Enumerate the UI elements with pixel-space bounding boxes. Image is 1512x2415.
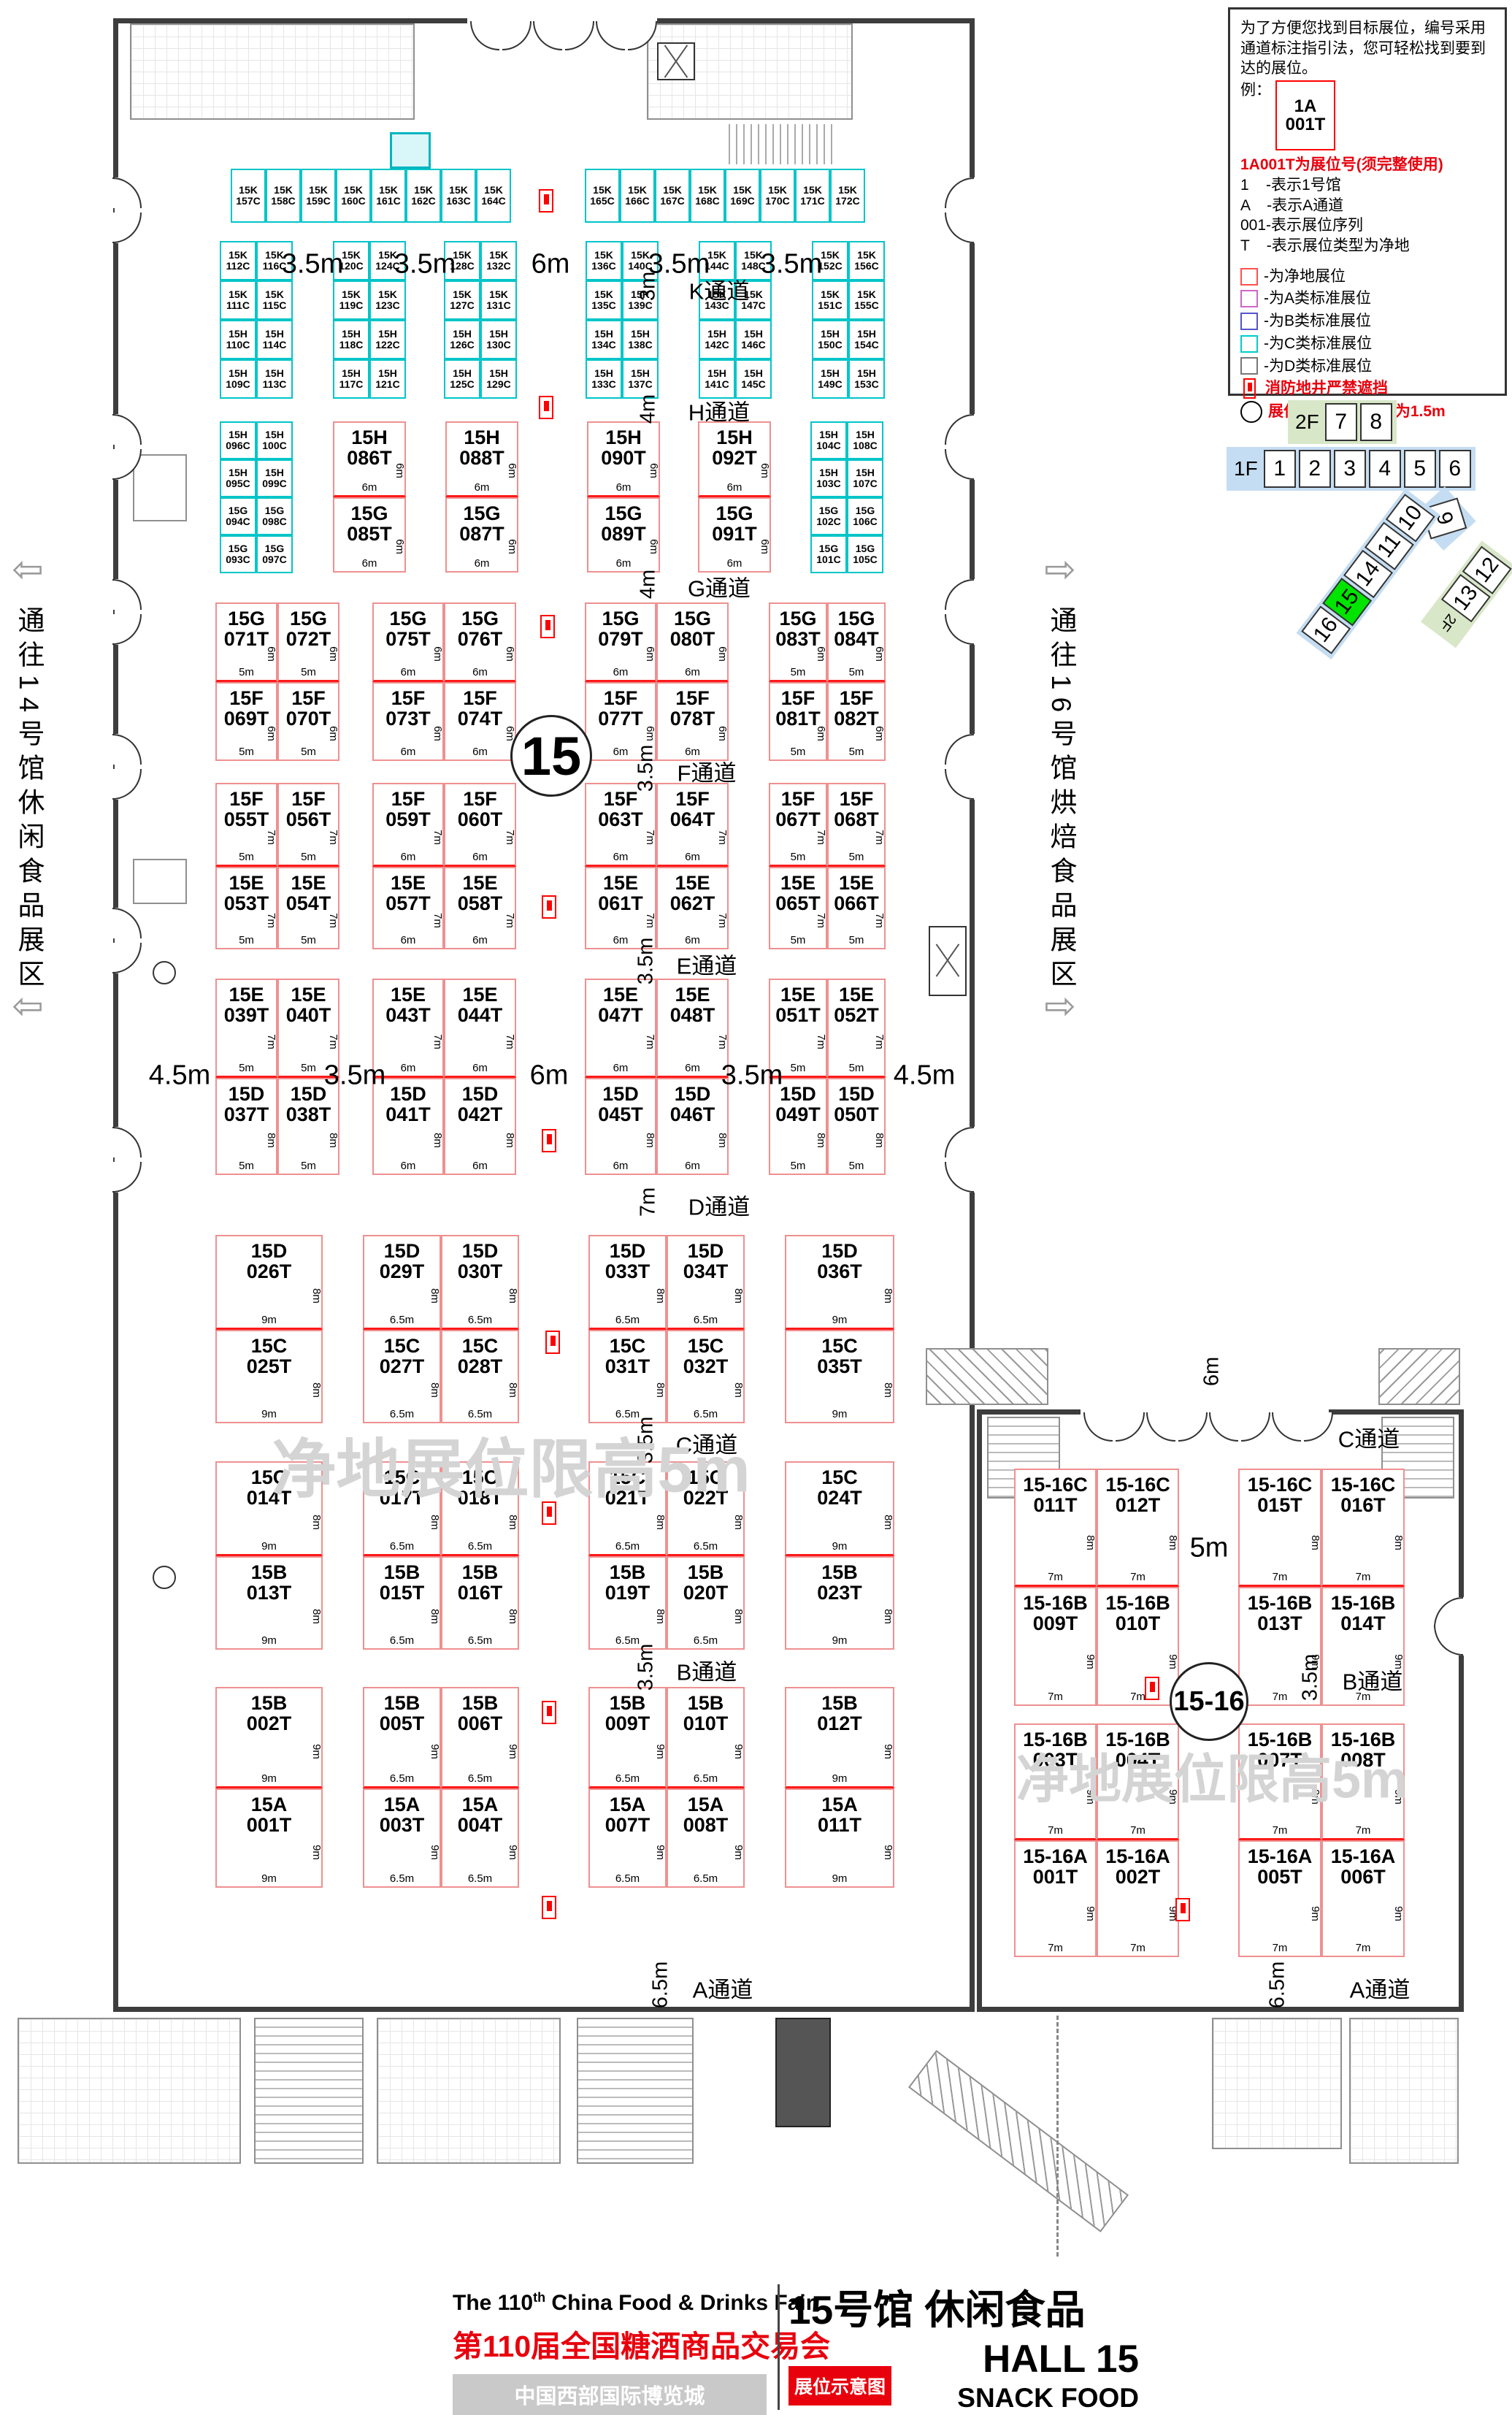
side-door — [942, 579, 977, 645]
fire-hydrant-icon — [542, 1501, 556, 1525]
minimap-hall-cell: 6 — [1439, 450, 1471, 488]
booth-15K132C: 15K132C — [480, 241, 517, 280]
minimap-2f-label: 2F — [1295, 410, 1319, 434]
booth-15H126C: 15H126C — [444, 320, 480, 359]
annex-door — [1272, 1409, 1333, 1444]
side-door — [110, 177, 145, 243]
legend-swatch-row: -为净地展位 — [1240, 267, 1497, 287]
booth-15A011T: 15A011T9m9m — [785, 1788, 894, 1888]
booth-15-16C012T: 15-16C012T8m7m — [1097, 1469, 1179, 1587]
legend-fire-note: 消防地井严禁遮挡 — [1265, 378, 1388, 399]
column-circle — [153, 961, 176, 984]
booth-15H142C: 15H142C — [699, 320, 735, 359]
booth-type-swatch-icon — [1240, 268, 1258, 286]
booth-15G085T: 15G085T6m6m — [333, 497, 406, 573]
booth-type-swatch-icon — [1240, 335, 1258, 353]
legend-swatch-label: -为D类标准展位 — [1264, 356, 1372, 377]
booth-15H122C: 15H122C — [369, 320, 406, 359]
booth-15F064T: 15F064T7m6m — [656, 783, 729, 867]
elevator-top — [657, 42, 695, 80]
booth-15D050T: 15D050T8m5m — [827, 1078, 886, 1175]
legend-intro: 为了方便您找到目标展位，编号采用通道标注指引法，您可轻松找到要到达的展位。 — [1240, 18, 1497, 79]
booth-15G087T: 15G087T6m6m — [445, 497, 518, 573]
legend-box: 为了方便您找到目标展位，编号采用通道标注指引法，您可轻松找到要到达的展位。 例：… — [1228, 7, 1507, 396]
booth-15E062T: 15E062T7m6m — [656, 867, 729, 949]
booth-15H146C: 15H146C — [735, 320, 772, 359]
booth-15K151C: 15K151C — [812, 280, 848, 320]
fire-hydrant-icon — [1145, 1677, 1159, 1700]
minimap-hall-cell: 5 — [1404, 450, 1436, 488]
booth-15A008T: 15A008T9m6.5m — [667, 1788, 745, 1888]
arrow-right-icon: ⇨ — [1044, 984, 1076, 1028]
column-circle — [153, 1566, 176, 1589]
wayfinding-left: 通往14号馆休闲食品展区 — [9, 606, 48, 994]
booth-15F078T: 15F078T6m6m — [656, 682, 729, 761]
hall-number-circle: 15 — [510, 715, 592, 797]
booth-15E058T: 15E058T7m6m — [444, 867, 516, 949]
booth-15E052T: 15E052T7m5m — [827, 979, 886, 1078]
booth-15K156C: 15K156C — [848, 241, 885, 280]
booth-15F082T: 15F082T6m5m — [827, 682, 886, 761]
legend-swatch-row: -为B类标准展位 — [1240, 311, 1497, 332]
booth-15K131C: 15K131C — [480, 280, 517, 320]
service-room-cyan — [390, 132, 431, 169]
booth-15E054T: 15E054T7m5m — [277, 867, 339, 949]
side-door — [110, 414, 145, 480]
canopy-hatch-left — [926, 1348, 1048, 1405]
booth-type-swatch-icon — [1240, 290, 1258, 307]
booth-15K136C: 15K136C — [586, 241, 622, 280]
booth-15H141C: 15H141C — [699, 359, 735, 399]
legend-example-label: 例： — [1240, 80, 1271, 101]
booth-15K171C: 15K171C — [795, 169, 830, 223]
booth-15F059T: 15F059T7m6m — [372, 783, 444, 867]
booth-15H104C: 15H104C — [810, 421, 847, 459]
booth-15E048T: 15E048T7m6m — [656, 979, 729, 1078]
legend-item: T -表示展位类型为净地 — [1240, 236, 1497, 256]
booth-15D041T: 15D041T8m6m — [372, 1078, 444, 1175]
booth-15-16A001T: 15-16A001T9m7m — [1014, 1840, 1097, 1957]
dim-label: 4m — [637, 394, 661, 424]
aisle-label-B通道: B通道 — [677, 1654, 737, 1687]
minimap-hall-cell: 8 — [1360, 403, 1392, 441]
booth-15F081T: 15F081T6m5m — [769, 682, 827, 761]
booth-15K119C: 15K119C — [333, 280, 369, 320]
booth-15F063T: 15F063T7m6m — [585, 783, 656, 867]
booth-type-swatch-icon — [1240, 313, 1258, 330]
side-door — [110, 579, 145, 645]
title-block: The 110th China Food & Drinks Fair 第110届… — [409, 2264, 1139, 2415]
legend-swatch-label: -为B类标准展位 — [1264, 311, 1371, 332]
booth-15K160C: 15K160C — [336, 169, 371, 223]
restroom-block-bottom-2 — [377, 2018, 561, 2164]
dim-label: 6.5m — [649, 1962, 673, 2008]
side-door — [942, 734, 977, 800]
booth-15K163C: 15K163C — [441, 169, 476, 223]
aisle-label-G通道: G通道 — [688, 570, 751, 603]
fire-hydrant-icon — [542, 1896, 556, 1919]
booth-15A001T: 15A001T9m9m — [215, 1788, 323, 1888]
booth-15K166C: 15K166C — [620, 169, 655, 223]
booth-15G105C: 15G105C — [847, 535, 883, 573]
booth-15H100C: 15H100C — [256, 421, 293, 459]
minimap-hall-cell: 1 — [1264, 450, 1296, 488]
booth-15G071T: 15G071T6m5m — [215, 602, 277, 682]
floorplan-canvas: ⇦ 通往14号馆休闲食品展区 ⇦ ⇨ 通往16号馆烘焙食品展区 ⇨ 为了方便您找… — [0, 0, 1512, 2415]
side-door — [110, 1127, 145, 1193]
entrance-door — [596, 18, 657, 55]
side-door — [942, 1127, 977, 1193]
booth-15K172C: 15K172C — [830, 169, 865, 223]
restroom-block-topleft — [130, 23, 415, 120]
booth-15H109C: 15H109C — [220, 359, 256, 399]
minimap-1f-label: 1F — [1234, 457, 1258, 481]
booth-15H134C: 15H134C — [586, 320, 622, 359]
booth-15B009T: 15B009T9m6.5m — [588, 1687, 667, 1788]
booth-15-16C016T: 15-16C016T8m7m — [1321, 1469, 1405, 1587]
booth-15H113C: 15H113C — [256, 359, 293, 399]
booth-15H108C: 15H108C — [847, 421, 883, 459]
booth-15H086T: 15H086T6m6m — [333, 421, 406, 497]
booth-15G075T: 15G075T6m6m — [372, 602, 444, 682]
booth-15K123C: 15K123C — [369, 280, 406, 320]
booth-15K127C: 15K127C — [444, 280, 480, 320]
fair-title-cn: 第110届全国糖酒商品交易会 — [453, 2322, 767, 2365]
legend-swatch-row: -为A类标准展位 — [1240, 288, 1497, 309]
legend-swatch-label: -为A类标准展位 — [1264, 288, 1371, 309]
booth-15C028T: 15C028T8m6.5m — [441, 1330, 519, 1423]
booth-15K167C: 15K167C — [655, 169, 690, 223]
booth-15-16B010T: 15-16B010T9m7m — [1097, 1587, 1179, 1706]
booth-15E044T: 15E044T7m6m — [444, 979, 516, 1078]
facility-annex-bottom-2 — [1349, 2018, 1459, 2164]
booth-15-16A006T: 15-16A006T9m7m — [1321, 1840, 1405, 1957]
booth-15K170C: 15K170C — [760, 169, 795, 223]
legend-item: 1 -表示1号馆 — [1240, 175, 1497, 196]
minimap-hall-cell: 2 — [1299, 450, 1331, 488]
booth-15C025T: 15C025T8m9m — [215, 1330, 323, 1423]
booth-15G102C: 15G102C — [810, 497, 847, 535]
booth-15F060T: 15F060T7m6m — [444, 783, 516, 867]
fair-title-en: The 110th China Food & Drinks Fair — [453, 2290, 767, 2316]
booth-15-16C011T: 15-16C011T8m7m — [1014, 1469, 1097, 1587]
booth-15B016T: 15B016T8m6.5m — [441, 1556, 519, 1650]
side-door — [110, 734, 145, 800]
booth-15B010T: 15B010T9m6.5m — [667, 1687, 745, 1788]
aisle-label-H通道: H通道 — [688, 394, 750, 427]
booth-15H121C: 15H121C — [369, 359, 406, 399]
restroom-block-bottomleft — [18, 2018, 241, 2164]
booth-15H096C: 15H096C — [220, 421, 256, 459]
booth-15B019T: 15B019T8m6.5m — [588, 1556, 667, 1650]
booth-15B020T: 15B020T8m6.5m — [667, 1556, 745, 1650]
shaft-bottom — [775, 2018, 831, 2127]
minimap-hall-cell: 3 — [1334, 450, 1366, 488]
booth-15G084T: 15G084T6m5m — [827, 602, 886, 682]
legend-swatch-label: -为净地展位 — [1264, 267, 1346, 287]
booth-15D034T: 15D034T8m6.5m — [667, 1235, 745, 1330]
booth-15H125C: 15H125C — [444, 359, 480, 399]
booth-15B012T: 15B012T9m9m — [785, 1687, 894, 1788]
booth-15G079T: 15G079T6m6m — [585, 602, 656, 682]
booth-15G097C: 15G097C — [256, 535, 293, 573]
booth-15F067T: 15F067T7m5m — [769, 783, 827, 867]
dim-label: 4.5m — [149, 1060, 210, 1092]
booth-15E066T: 15E066T7m5m — [827, 867, 886, 949]
booth-15H095C: 15H095C — [220, 459, 256, 497]
fire-hydrant-icon — [542, 1129, 556, 1152]
booth-15F074T: 15F074T6m6m — [444, 682, 516, 761]
booth-15C024T: 15C024T8m9m — [785, 1461, 894, 1556]
booth-15H118C: 15H118C — [333, 320, 369, 359]
booth-15H137C: 15H137C — [622, 359, 659, 399]
booth-15G106C: 15G106C — [847, 497, 883, 535]
legend-swatch-row: -为C类标准展位 — [1240, 334, 1497, 354]
dim-label: 3.5m — [721, 1060, 783, 1092]
booth-15H114C: 15H114C — [256, 320, 293, 359]
fire-hydrant-icon — [1175, 1898, 1190, 1921]
booth-15H133C: 15H133C — [586, 359, 622, 399]
booth-15-16B009T: 15-16B009T9m7m — [1014, 1587, 1097, 1706]
booth-15H150C: 15H150C — [812, 320, 848, 359]
booth-15G091T: 15G091T6m6m — [698, 497, 771, 573]
booth-15H154C: 15H154C — [848, 320, 885, 359]
booth-15H103C: 15H103C — [810, 459, 847, 497]
minimap-2f-side-label: 2F — [1436, 611, 1459, 634]
stairs-bottom-1 — [254, 2018, 364, 2164]
booth-15A004T: 15A004T9m6.5m — [441, 1788, 519, 1888]
booth-15A007T: 15A007T9m6.5m — [588, 1788, 667, 1888]
fire-hydrant-icon — [539, 396, 553, 419]
aisle-label-E通道: E通道 — [677, 948, 737, 981]
dim-label: 3.5m — [1299, 1654, 1323, 1701]
aisle-label-F通道: F通道 — [678, 755, 737, 788]
dim-label: 5m — [1190, 1533, 1229, 1564]
hall-number-circle: 15-16 — [1170, 1662, 1248, 1741]
room-left-2 — [133, 859, 187, 904]
dim-label: 3.5m — [394, 249, 456, 280]
aisle-label-C通道: C通道 — [1338, 1421, 1400, 1454]
booth-15D033T: 15D033T8m6.5m — [588, 1235, 667, 1330]
aisle-label-D通道: D通道 — [688, 1189, 750, 1222]
stairs-bottom-2 — [577, 2018, 694, 2164]
booth-15A003T: 15A003T9m6.5m — [363, 1788, 441, 1888]
booth-15G076T: 15G076T6m6m — [444, 602, 516, 682]
booth-15B006T: 15B006T9m6.5m — [441, 1687, 519, 1788]
booth-15C035T: 15C035T8m9m — [785, 1330, 894, 1423]
booth-15D026T: 15D026T8m9m — [215, 1235, 323, 1330]
annex-door — [1146, 1409, 1208, 1444]
annex-door — [1209, 1409, 1270, 1444]
booth-15C027T: 15C027T8m6.5m — [363, 1330, 441, 1423]
escalator-ramp — [908, 2050, 1129, 2232]
dim-label: 3.5m — [761, 249, 822, 280]
booth-15D038T: 15D038T8m5m — [277, 1078, 339, 1175]
booth-15E057T: 15E057T7m6m — [372, 867, 444, 949]
minimap-hall-cell: 7 — [1325, 403, 1357, 441]
title-divider — [778, 2284, 780, 2410]
booth-15D037T: 15D037T8m5m — [215, 1078, 277, 1175]
entrance-door — [533, 18, 594, 55]
booth-15-16A005T: 15-16A005T9m7m — [1238, 1840, 1321, 1957]
booth-15H107C: 15H107C — [847, 459, 883, 497]
arrow-left-icon: ⇦ — [12, 548, 44, 592]
booth-15K115C: 15K115C — [256, 280, 293, 320]
booth-15D029T: 15D029T8m6.5m — [363, 1235, 441, 1330]
booth-15E065T: 15E065T7m5m — [769, 867, 827, 949]
booth-15K161C: 15K161C — [371, 169, 406, 223]
booth-15H138C: 15H138C — [622, 320, 659, 359]
minimap-hall-cell: 4 — [1369, 450, 1401, 488]
booth-15K135C: 15K135C — [586, 280, 622, 320]
legend-swatch-label: -为C类标准展位 — [1264, 334, 1372, 354]
booth-15F069T: 15F069T6m5m — [215, 682, 277, 761]
aisle-label-B通道: B通道 — [1343, 1664, 1403, 1696]
booth-15K112C: 15K112C — [220, 241, 256, 280]
dim-label: 4.5m — [894, 1060, 955, 1092]
booth-15F070T: 15F070T6m5m — [277, 682, 339, 761]
dim-label: 6m — [531, 249, 570, 280]
booth-15-16C015T: 15-16C015T8m7m — [1238, 1469, 1321, 1587]
booth-15B005T: 15B005T9m6.5m — [363, 1687, 441, 1788]
booth-15G080T: 15G080T6m6m — [656, 602, 729, 682]
section-divider-dashed — [1056, 2016, 1059, 2257]
booth-15C032T: 15C032T8m6.5m — [667, 1330, 745, 1423]
booth-15K168C: 15K168C — [690, 169, 725, 223]
minimap-2f-strip: 2F 78 — [1288, 400, 1397, 444]
fire-hydrant-icon — [540, 615, 555, 638]
booth-15K162C: 15K162C — [406, 169, 441, 223]
booth-15G083T: 15G083T6m5m — [769, 602, 827, 682]
booth-15G098C: 15G098C — [256, 497, 293, 535]
booth-15H129C: 15H129C — [480, 359, 517, 399]
venue-name: 中国西部国际博览城 — [453, 2374, 767, 2415]
height-limit-watermark: 净地展位限高5m — [272, 1418, 750, 1511]
booth-15K155C: 15K155C — [848, 280, 885, 320]
booth-15F068T: 15F068T7m5m — [827, 783, 886, 867]
booth-15H117C: 15H117C — [333, 359, 369, 399]
booth-15H092T: 15H092T6m6m — [698, 421, 771, 497]
booth-15B015T: 15B015T8m6.5m — [363, 1556, 441, 1650]
minimap-hall-chain: 1011141516 — [1296, 489, 1440, 659]
entrance-door — [470, 18, 531, 55]
booth-15K164C: 15K164C — [476, 169, 511, 223]
booth-15D030T: 15D030T8m6.5m — [441, 1235, 519, 1330]
booth-15K111C: 15K111C — [220, 280, 256, 320]
minimap-1f-strip: 1F 123456 — [1227, 447, 1475, 491]
booth-type-swatch-icon — [1240, 357, 1258, 375]
booth-15H090T: 15H090T6m6m — [587, 421, 660, 497]
side-door — [110, 908, 145, 973]
booth-15H153C: 15H153C — [848, 359, 885, 399]
booth-15C031T: 15C031T8m6.5m — [588, 1330, 667, 1423]
dim-label: 3.5m — [634, 1644, 659, 1691]
side-door — [942, 177, 977, 243]
dim-label: 6m — [1200, 1357, 1224, 1386]
booth-15E039T: 15E039T7m5m — [215, 979, 277, 1078]
fire-hydrant-icon — [542, 1701, 556, 1724]
vent-grille-top — [723, 124, 832, 164]
booth-15-16A002T: 15-16A002T9m7m — [1097, 1840, 1179, 1957]
dim-label: 7m — [637, 1187, 661, 1217]
wayfinding-right: 通往16号馆烘焙食品展区 — [1041, 606, 1081, 994]
fire-hydrant-icon — [545, 1331, 560, 1354]
booth-15H130C: 15H130C — [480, 320, 517, 359]
canopy-hatch-right — [1378, 1348, 1460, 1405]
booth-15F055T: 15F055T7m5m — [215, 783, 277, 867]
map-type-badge: 展位示意图 — [788, 2366, 891, 2406]
dim-label: 3.5m — [634, 938, 659, 984]
dim-label: 4m — [637, 570, 661, 599]
legend-item: A -表示A通道 — [1240, 196, 1497, 216]
booth-15B002T: 15B002T9m9m — [215, 1687, 323, 1788]
booth-15B013T: 15B013T8m9m — [215, 1556, 323, 1650]
dim-label: 3.5m — [324, 1060, 385, 1092]
booth-15D045T: 15D045T8m6m — [585, 1078, 656, 1175]
arrow-left-icon: ⇦ — [12, 984, 44, 1028]
height-limit-watermark: 净地展位限高5m — [1016, 1737, 1408, 1813]
aisle-label-A通道: A通道 — [1350, 1972, 1411, 2005]
elevator-mid-right — [929, 926, 967, 996]
dim-label: 3.5m — [282, 249, 343, 280]
booth-15G094C: 15G094C — [220, 497, 256, 535]
booth-15H149C: 15H149C — [812, 359, 848, 399]
dim-label: 3.5m — [648, 249, 710, 280]
booth-15G089T: 15G089T6m6m — [587, 497, 660, 573]
venue-minimap: 2F 78 1F 123456 9 1011141516 12132F — [1227, 400, 1511, 714]
booth-15F073T: 15F073T6m6m — [372, 682, 444, 761]
booth-15B023T: 15B023T8m9m — [785, 1556, 894, 1650]
booth-15E047T: 15E047T7m6m — [585, 979, 656, 1078]
booth-15G093C: 15G093C — [220, 535, 256, 573]
booth-15D042T: 15D042T8m6m — [444, 1078, 516, 1175]
booth-15K157C: 15K157C — [231, 169, 266, 223]
side-door — [1431, 1597, 1466, 1656]
fire-hydrant-icon — [539, 189, 553, 213]
booth-15K158C: 15K158C — [266, 169, 301, 223]
legend-note: 1A001T为展位号(须完整使用) — [1240, 155, 1497, 175]
arrow-right-icon: ⇨ — [1044, 548, 1076, 592]
booth-15K159C: 15K159C — [301, 169, 336, 223]
dim-label: 3.5m — [634, 745, 659, 792]
dim-label: 6.5m — [1266, 1962, 1290, 2008]
minimap-hall12-13: 12132F — [1421, 540, 1512, 648]
legend-example-booth: 1A001T — [1275, 80, 1335, 150]
booth-15E053T: 15E053T7m5m — [215, 867, 277, 949]
booth-15K169C: 15K169C — [725, 169, 760, 223]
booth-15G072T: 15G072T6m5m — [277, 602, 339, 682]
legend-item: 001-表示展位序列 — [1240, 215, 1497, 236]
facility-annex-bottom-1 — [1212, 2018, 1342, 2149]
booth-15H145C: 15H145C — [735, 359, 772, 399]
fire-hydrant-icon — [542, 895, 556, 919]
fire-hydrant-icon — [1243, 378, 1256, 399]
booth-15H099C: 15H099C — [256, 459, 293, 497]
booth-15K165C: 15K165C — [585, 169, 620, 223]
aisle-label-A通道: A通道 — [693, 1972, 753, 2005]
dim-label: 6m — [530, 1060, 569, 1092]
annex-door — [1083, 1409, 1145, 1444]
hall-title-cn: 15号馆 休闲食品 — [788, 2277, 1139, 2335]
side-door — [942, 414, 977, 480]
booth-15D049T: 15D049T8m5m — [769, 1078, 827, 1175]
booth-15D036T: 15D036T8m9m — [785, 1235, 894, 1330]
booth-15H088T: 15H088T6m6m — [445, 421, 518, 497]
booth-15G101C: 15G101C — [810, 535, 847, 573]
legend-swatch-row: -为D类标准展位 — [1240, 356, 1497, 377]
booth-15D046T: 15D046T8m6m — [656, 1078, 729, 1175]
booth-15F056T: 15F056T7m5m — [277, 783, 339, 867]
